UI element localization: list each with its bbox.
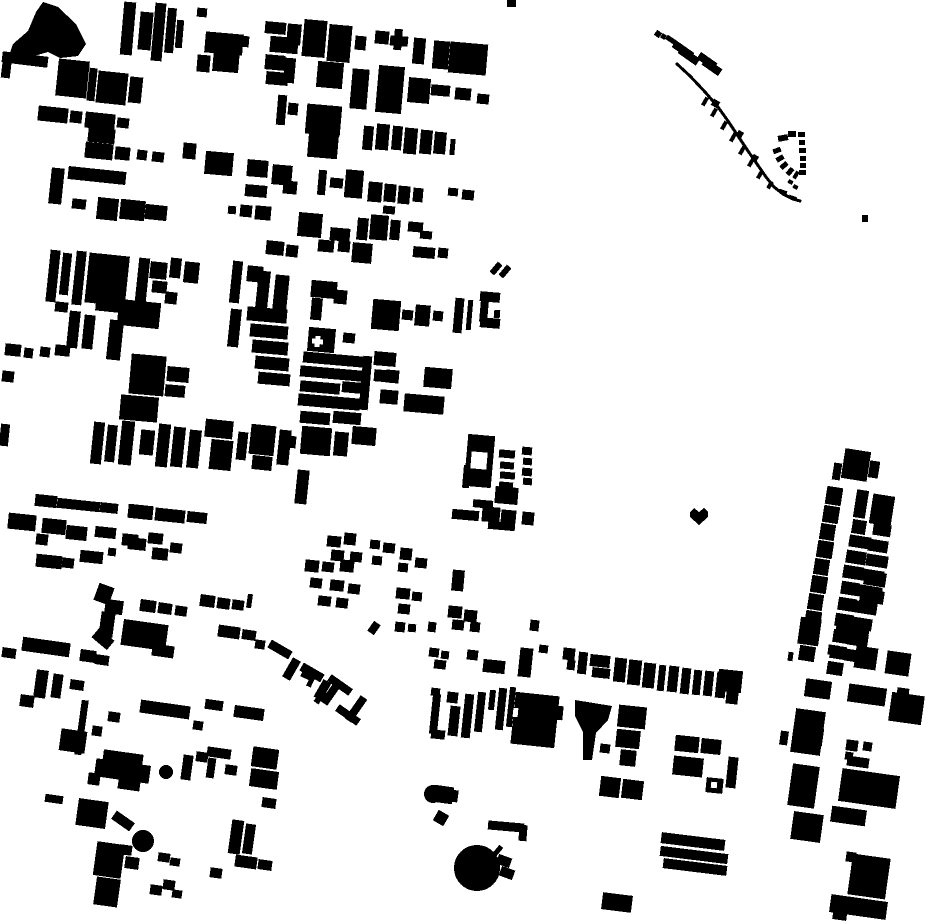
building-footprint bbox=[164, 291, 177, 304]
building-footprint bbox=[627, 659, 643, 685]
building-footprint bbox=[21, 637, 70, 658]
building-footprint bbox=[474, 692, 486, 733]
building-footprint bbox=[529, 620, 539, 632]
building-footprint bbox=[840, 581, 860, 597]
building-footprint bbox=[108, 548, 117, 557]
building-footprint bbox=[403, 393, 444, 414]
building-footprint bbox=[137, 12, 153, 51]
building-footprint bbox=[254, 356, 289, 372]
building-footprint bbox=[408, 624, 417, 633]
building-footprint bbox=[209, 867, 222, 879]
building-footprint bbox=[300, 365, 363, 381]
building-footprint bbox=[265, 21, 287, 35]
building-footprint bbox=[182, 142, 196, 159]
building-footprint bbox=[231, 599, 244, 611]
building-footprint bbox=[482, 659, 505, 674]
building-footprint bbox=[710, 108, 718, 118]
building-footprint bbox=[566, 660, 575, 671]
building-footprint bbox=[847, 683, 887, 706]
building-footprint bbox=[621, 779, 644, 800]
building-footprint bbox=[55, 58, 90, 98]
building-footprint bbox=[45, 794, 64, 804]
building-footprint bbox=[362, 126, 374, 151]
building-footprint bbox=[310, 577, 323, 588]
building-footprint bbox=[841, 448, 871, 482]
building-footprint bbox=[385, 369, 399, 383]
building-footprint bbox=[865, 553, 889, 568]
building-footprint bbox=[433, 810, 449, 826]
building-footprint bbox=[642, 662, 657, 688]
building-footprint bbox=[229, 261, 243, 304]
building-footprint bbox=[415, 557, 428, 568]
building-footprint bbox=[495, 688, 507, 731]
building-footprint bbox=[54, 344, 70, 357]
building-footprint bbox=[522, 468, 533, 477]
building-footprint bbox=[470, 622, 481, 633]
building-footprint bbox=[356, 218, 369, 241]
building-footprint bbox=[87, 127, 115, 145]
round-building bbox=[159, 765, 173, 779]
building-footprint bbox=[800, 156, 806, 161]
building-footprint bbox=[252, 339, 289, 355]
building-footprint bbox=[680, 668, 692, 695]
building-footprint bbox=[427, 622, 436, 633]
building-footprint bbox=[1, 647, 16, 659]
building-footprint bbox=[234, 855, 257, 870]
building-footprint bbox=[57, 498, 101, 512]
building-footprint bbox=[157, 602, 172, 615]
building-footprint bbox=[452, 509, 480, 521]
building-footprint bbox=[431, 729, 446, 739]
building-footprint bbox=[154, 507, 185, 523]
building-footprint bbox=[333, 431, 349, 456]
building-footprint bbox=[137, 150, 148, 161]
building-footprint bbox=[50, 673, 63, 698]
round-building bbox=[132, 830, 154, 852]
building-footprint bbox=[888, 692, 925, 725]
building-footprint bbox=[69, 679, 84, 691]
building-footprint bbox=[717, 669, 743, 693]
building-footprint bbox=[330, 177, 344, 188]
building-footprint bbox=[297, 212, 323, 238]
building-footprint bbox=[379, 389, 398, 405]
building-footprint bbox=[433, 132, 447, 155]
building-footprint bbox=[227, 309, 242, 348]
building-footprint bbox=[100, 502, 119, 514]
building-footprint bbox=[55, 301, 69, 312]
round-building bbox=[454, 845, 500, 891]
building-footprint bbox=[523, 458, 533, 466]
building-footprint bbox=[371, 299, 402, 331]
building-footprint bbox=[106, 319, 124, 360]
building-footprint bbox=[119, 199, 146, 222]
building-footprint bbox=[827, 644, 838, 655]
building-footprint bbox=[790, 811, 824, 843]
building-footprint bbox=[521, 512, 534, 526]
courtyard-hole bbox=[312, 339, 323, 345]
building-footprint bbox=[216, 597, 230, 610]
building-footprint bbox=[615, 729, 641, 749]
building-footprint bbox=[842, 565, 864, 581]
building-footprint bbox=[701, 97, 709, 107]
building-footprint bbox=[772, 147, 781, 154]
building-footprint bbox=[269, 36, 298, 54]
building-footprint bbox=[402, 310, 414, 321]
building-footprint bbox=[810, 575, 828, 594]
building-footprint bbox=[813, 558, 830, 576]
building-footprint bbox=[128, 354, 166, 397]
building-footprint bbox=[304, 559, 319, 572]
building-footprint bbox=[81, 315, 95, 350]
building-footprint bbox=[518, 647, 534, 677]
building-footprint bbox=[434, 659, 447, 669]
building-footprint bbox=[822, 505, 840, 524]
building-footprint bbox=[197, 8, 208, 18]
building-footprint bbox=[800, 163, 806, 168]
building-footprint bbox=[272, 274, 290, 310]
building-footprint bbox=[257, 859, 272, 871]
building-footprint bbox=[245, 184, 268, 198]
building-footprint bbox=[251, 746, 280, 769]
building-footprint bbox=[455, 620, 464, 631]
building-footprint bbox=[837, 597, 857, 613]
building-footprint bbox=[845, 550, 867, 566]
building-footprint bbox=[500, 471, 516, 479]
building-footprint bbox=[725, 691, 738, 704]
building-footprint bbox=[48, 167, 65, 204]
building-footprint bbox=[199, 594, 216, 608]
building-footprint bbox=[407, 77, 431, 104]
building-footprint bbox=[169, 857, 180, 866]
building-footprint bbox=[429, 694, 441, 735]
building-footprint bbox=[236, 432, 249, 461]
building-footprint bbox=[373, 351, 396, 367]
building-footprint bbox=[135, 258, 151, 303]
building-footprint bbox=[96, 197, 119, 221]
building-footprint bbox=[832, 462, 843, 480]
building-footprint bbox=[7, 513, 37, 532]
building-footprint bbox=[37, 105, 68, 123]
building-footprint bbox=[165, 384, 186, 398]
building-footprint bbox=[799, 170, 806, 175]
building-footprint bbox=[149, 261, 168, 280]
building-footprint bbox=[300, 426, 332, 457]
building-footprint bbox=[351, 242, 373, 264]
building-footprint bbox=[249, 768, 279, 790]
building-footprint bbox=[72, 198, 87, 209]
building-footprint bbox=[91, 725, 102, 736]
building-footprint bbox=[239, 204, 252, 217]
building-footprint bbox=[316, 61, 344, 89]
building-footprint bbox=[94, 526, 116, 539]
building-footprint bbox=[819, 523, 836, 541]
building-footprint bbox=[300, 380, 341, 394]
building-footprint bbox=[217, 625, 240, 640]
building-footprint bbox=[84, 142, 114, 161]
building-footprint bbox=[287, 103, 298, 116]
building-footprint bbox=[119, 394, 159, 422]
building-footprint bbox=[449, 139, 455, 155]
building-footprint bbox=[577, 652, 588, 675]
building-footprint bbox=[846, 756, 869, 769]
building-footprint bbox=[657, 665, 667, 692]
building-footprint bbox=[104, 425, 118, 463]
building-footprint bbox=[285, 244, 298, 257]
building-footprint bbox=[264, 54, 285, 71]
building-footprint bbox=[599, 776, 621, 798]
building-footprint bbox=[90, 422, 105, 465]
building-footprint bbox=[128, 76, 144, 103]
building-footprint bbox=[589, 654, 610, 668]
building-footprint bbox=[391, 126, 403, 151]
building-footprint bbox=[372, 556, 383, 566]
building-footprint bbox=[294, 469, 309, 504]
building-footprint bbox=[151, 547, 168, 561]
building-footprint bbox=[351, 426, 376, 446]
building-footprint bbox=[169, 257, 182, 278]
building-footprint bbox=[174, 605, 187, 617]
building-footprint bbox=[446, 691, 458, 703]
building-footprint bbox=[127, 537, 146, 551]
heart-mark bbox=[690, 508, 708, 525]
building-footprint bbox=[825, 486, 844, 506]
building-footprint bbox=[162, 879, 175, 891]
building-footprint bbox=[246, 159, 268, 178]
building-footprint bbox=[395, 622, 406, 633]
building-footprint bbox=[208, 439, 233, 471]
building-footprint bbox=[488, 690, 496, 711]
building-footprint bbox=[62, 557, 75, 568]
building-footprint bbox=[451, 570, 465, 592]
building-footprint bbox=[33, 669, 49, 698]
building-footprint bbox=[397, 186, 411, 205]
building-footprint bbox=[419, 130, 433, 155]
building-footprint bbox=[195, 751, 208, 763]
building-footprint bbox=[383, 184, 397, 203]
building-footprint bbox=[467, 649, 479, 660]
building-footprint bbox=[396, 587, 411, 599]
building-footprint bbox=[93, 841, 125, 879]
building-footprint bbox=[494, 486, 518, 505]
building-footprint bbox=[432, 40, 450, 69]
building-footprint bbox=[499, 866, 516, 880]
building-footprint bbox=[477, 93, 490, 104]
building-footprint bbox=[139, 599, 157, 613]
building-footprint bbox=[87, 772, 101, 786]
building-footprint bbox=[375, 65, 405, 114]
building-footprint bbox=[592, 667, 611, 679]
building-footprint bbox=[41, 518, 66, 535]
building-footprint bbox=[139, 429, 156, 455]
building-footprint bbox=[522, 447, 533, 456]
building-footprint bbox=[183, 261, 200, 283]
building-footprint bbox=[403, 127, 418, 154]
building-footprint bbox=[318, 595, 332, 606]
building-footprint bbox=[157, 852, 170, 863]
building-footprint bbox=[204, 151, 234, 176]
building-footprint bbox=[862, 741, 872, 751]
building-footprint bbox=[700, 738, 721, 755]
building-footprint bbox=[775, 154, 784, 162]
building-footprint bbox=[797, 617, 822, 647]
building-footprint bbox=[799, 148, 806, 153]
building-footprint bbox=[412, 38, 426, 65]
building-footprint bbox=[423, 367, 453, 389]
building-footprint bbox=[617, 705, 647, 730]
building-footprint bbox=[897, 687, 910, 697]
building-footprint bbox=[447, 706, 460, 737]
building-footprint bbox=[250, 323, 289, 339]
building-footprint bbox=[233, 705, 264, 721]
building-footprint bbox=[338, 240, 351, 252]
building-footprint bbox=[240, 36, 250, 48]
building-footprint bbox=[838, 768, 900, 809]
building-footprint bbox=[282, 657, 301, 681]
building-footprint bbox=[192, 720, 203, 730]
building-footprint bbox=[59, 728, 88, 753]
building-footprint bbox=[834, 616, 858, 643]
courtyard-hole bbox=[470, 451, 487, 469]
building-footprint bbox=[500, 461, 515, 469]
building-footprint bbox=[412, 188, 423, 203]
building-footprint bbox=[798, 132, 805, 137]
building-footprint bbox=[412, 592, 423, 602]
building-footprint bbox=[114, 146, 130, 160]
building-footprint bbox=[95, 71, 128, 106]
building-footprint bbox=[310, 298, 323, 321]
building-footprint bbox=[383, 542, 396, 553]
building-footprint bbox=[448, 605, 463, 618]
building-footprint bbox=[40, 347, 51, 358]
building-footprint bbox=[35, 533, 48, 545]
building-footprint bbox=[75, 798, 108, 829]
building-footprint bbox=[420, 230, 433, 239]
building-footprint bbox=[300, 411, 331, 426]
building-footprint bbox=[792, 184, 798, 190]
building-footprint bbox=[0, 424, 10, 447]
building-footprint bbox=[318, 239, 335, 252]
building-footprint bbox=[393, 29, 403, 51]
building-footprint bbox=[488, 820, 525, 832]
building-footprint bbox=[438, 248, 449, 259]
building-footprint bbox=[499, 449, 516, 458]
building-footprint bbox=[155, 423, 171, 467]
building-footprint bbox=[166, 366, 189, 383]
building-footprint bbox=[67, 166, 126, 185]
building-footprint bbox=[254, 639, 265, 649]
building-footprint bbox=[494, 310, 501, 318]
building-footprint bbox=[180, 754, 193, 780]
building-footprint bbox=[799, 140, 805, 145]
building-footprint bbox=[413, 246, 436, 259]
building-footprint bbox=[867, 539, 889, 554]
building-footprint bbox=[59, 253, 72, 296]
building-footprint bbox=[224, 764, 237, 776]
building-footprint bbox=[124, 856, 140, 870]
building-footprint bbox=[305, 104, 342, 137]
building-footprint bbox=[45, 250, 60, 303]
building-footprint bbox=[149, 884, 162, 896]
building-footprint bbox=[788, 131, 796, 137]
building-footprint bbox=[367, 621, 380, 635]
building-footprint bbox=[261, 797, 276, 809]
building-footprint bbox=[798, 645, 816, 662]
building-footprint bbox=[170, 426, 186, 467]
building-footprint bbox=[853, 489, 869, 519]
building-footprint bbox=[127, 504, 153, 521]
building-footprint bbox=[354, 36, 366, 51]
building-footprint bbox=[336, 597, 349, 608]
building-footprint bbox=[326, 24, 352, 63]
building-footprint bbox=[804, 678, 832, 699]
building-footprint bbox=[674, 735, 700, 753]
building-footprint bbox=[24, 348, 34, 359]
building-footprint bbox=[303, 351, 364, 367]
building-footprint bbox=[619, 749, 637, 767]
building-footprint bbox=[885, 650, 912, 676]
building-footprint bbox=[778, 134, 789, 142]
building-footprint bbox=[282, 180, 297, 194]
building-footprint bbox=[383, 205, 396, 214]
building-footprint bbox=[93, 876, 121, 907]
building-footprint bbox=[466, 300, 474, 330]
building-footprint bbox=[317, 170, 327, 196]
building-footprint bbox=[462, 189, 475, 200]
building-footprint bbox=[518, 825, 527, 842]
building-footprint bbox=[65, 525, 87, 541]
building-footprint bbox=[150, 3, 166, 62]
building-footprint bbox=[147, 532, 163, 545]
building-footprint bbox=[265, 240, 284, 256]
building-footprint bbox=[792, 171, 799, 180]
building-footprint bbox=[152, 151, 165, 162]
building-footprint bbox=[555, 706, 563, 721]
building-footprint bbox=[175, 20, 184, 49]
building-footprint bbox=[449, 790, 459, 803]
building-footprint bbox=[327, 535, 342, 547]
building-footprint bbox=[342, 381, 363, 394]
building-footprint bbox=[389, 220, 401, 241]
building-footprint bbox=[851, 519, 867, 535]
building-footprint bbox=[204, 699, 223, 711]
building-footprint bbox=[480, 317, 501, 329]
building-footprint bbox=[107, 711, 120, 723]
building-footprint bbox=[433, 311, 444, 322]
building-footprint bbox=[448, 41, 489, 75]
building-footprint bbox=[672, 755, 704, 777]
building-footprint bbox=[265, 71, 288, 86]
building-footprint bbox=[678, 46, 701, 65]
building-footprint bbox=[139, 700, 190, 720]
building-footprint bbox=[779, 731, 789, 746]
building-footprint bbox=[830, 806, 867, 827]
building-footprint bbox=[307, 132, 339, 160]
building-footprint bbox=[71, 251, 87, 306]
building-footprint bbox=[242, 823, 256, 854]
building-footprint bbox=[170, 542, 183, 553]
building-footprint bbox=[287, 436, 296, 449]
building-footprint bbox=[452, 298, 464, 334]
building-footprint bbox=[816, 540, 834, 559]
building-footprint bbox=[66, 311, 81, 349]
building-footprint bbox=[862, 215, 868, 222]
building-footprint bbox=[539, 645, 549, 654]
building-footprint bbox=[322, 561, 335, 572]
building-footprint bbox=[374, 30, 389, 44]
building-footprint bbox=[510, 692, 559, 748]
building-footprint bbox=[186, 429, 202, 468]
building-footprint bbox=[779, 161, 788, 170]
